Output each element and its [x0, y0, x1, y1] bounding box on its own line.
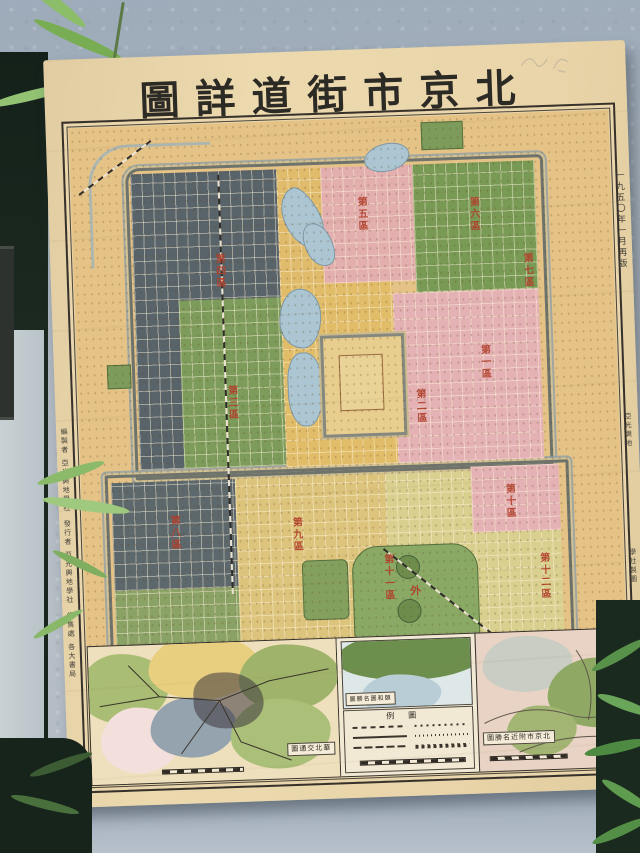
district-label-outer: 外 — [407, 584, 423, 598]
inset-caption-right: 圖勝名近附市京北 — [483, 730, 555, 746]
legend-box: 例圖 — [343, 706, 475, 773]
district-label: 第九區 — [288, 517, 304, 554]
inset-middle: 圖勝名園和頤 例圖 — [336, 633, 479, 778]
legend-symbol-row — [415, 743, 469, 749]
district-label: 第二區 — [412, 388, 428, 425]
forbidden-city-core — [339, 354, 385, 412]
wall-picture-frame — [0, 246, 14, 420]
main-city-map: 第四區 第五區 第六區 第一區 第二區 第三區 第七區 第八區 第九區 第十區 … — [69, 110, 627, 667]
legend-title: 例圖 — [344, 708, 472, 723]
xiannongtan-park — [302, 559, 350, 621]
district-label: 第十一區 — [380, 553, 397, 601]
district-label: 第五區 — [353, 196, 369, 233]
district-label: 第十區 — [501, 483, 517, 520]
north-suburb-park — [421, 121, 464, 150]
district-label: 第七區 — [519, 252, 535, 289]
legend-scalebar — [360, 757, 466, 766]
legend-symbol-row — [353, 745, 407, 749]
inset-caption-middle: 圖勝名園和頤 — [345, 691, 395, 706]
district-label: 第四區 — [211, 253, 227, 290]
bamboo-plant-right — [596, 600, 640, 853]
legend-symbol-row — [353, 735, 407, 739]
district-label: 第一區 — [476, 344, 492, 381]
inset-strip: 圖通交北華 圖勝名園和頤 例圖 — [87, 627, 632, 786]
legend-symbol-row — [353, 725, 407, 729]
legend-symbol-row — [415, 733, 469, 737]
district-label: 第三區 — [224, 385, 240, 422]
rail-lines — [88, 639, 341, 785]
inset-caption-left: 圖通交北華 — [287, 742, 335, 757]
west-suburb-park — [107, 365, 132, 390]
district-block-e-pink — [392, 288, 544, 463]
district-label: 第六區 — [465, 196, 481, 233]
inset-huabei-map: 圖通交北華 — [87, 637, 342, 786]
summer-palace-map: 圖勝名園和頤 — [341, 637, 473, 709]
district-block-sw-green — [115, 587, 241, 647]
district-label: 第八區 — [166, 515, 182, 552]
photo-of-map-on-wall: 圖詳道街市京北 一九五〇年一月再版 亞光輿地 學社製圖 編製者 亞光輿地學社 發… — [0, 0, 640, 853]
district-block-w-green — [179, 297, 287, 468]
map-poster: 圖詳道街市京北 一九五〇年一月再版 亞光輿地 學社製圖 編製者 亞光輿地學社 發… — [43, 40, 640, 808]
legend-symbol-row — [415, 723, 469, 727]
map-frame: 第四區 第五區 第六區 第一區 第二區 第三區 第七區 第八區 第九區 第十區 … — [61, 102, 638, 793]
district-label: 第十二區 — [536, 552, 553, 600]
